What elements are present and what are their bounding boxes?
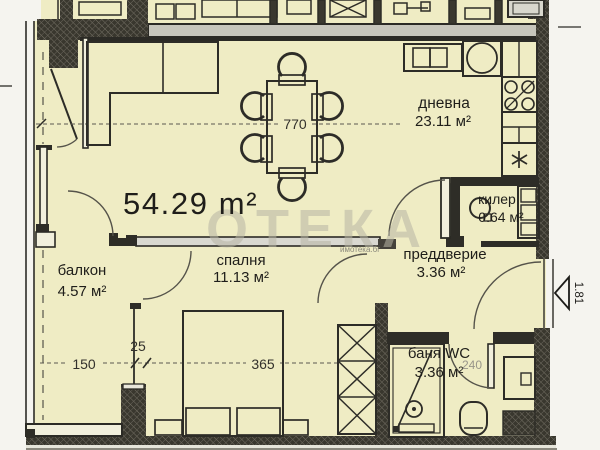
svg-text:преддверие: преддверие [403, 246, 486, 263]
svg-text:3.36 м²: 3.36 м² [415, 364, 464, 381]
svg-text:150: 150 [72, 356, 96, 372]
svg-text:0.64 м²: 0.64 м² [478, 209, 524, 225]
svg-text:килер: килер [478, 191, 516, 207]
svg-text:1.81: 1.81 [572, 282, 584, 304]
svg-text:240: 240 [462, 358, 482, 372]
svg-text:дневна: дневна [418, 95, 470, 112]
svg-text:4.57 м²: 4.57 м² [58, 283, 107, 300]
svg-text:770: 770 [283, 116, 307, 132]
svg-text:23.11 м²: 23.11 м² [415, 113, 471, 130]
svg-text:имотека.бг: имотека.бг [340, 245, 380, 254]
svg-text:11.13 м²: 11.13 м² [213, 269, 269, 286]
svg-text:балкон: балкон [58, 262, 107, 279]
svg-text:3.36 м²: 3.36 м² [417, 264, 466, 281]
svg-text:спалня: спалня [216, 252, 265, 269]
svg-text:25: 25 [130, 338, 146, 354]
svg-text:365: 365 [251, 356, 275, 372]
svg-text:54.29 m²: 54.29 m² [123, 186, 258, 221]
svg-text:баня WC: баня WC [408, 345, 470, 362]
